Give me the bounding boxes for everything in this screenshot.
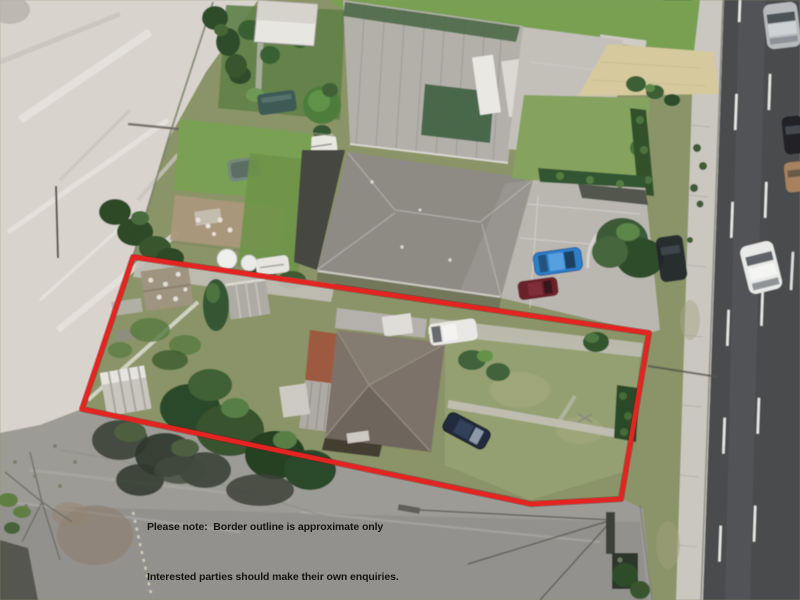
gray-shed: [226, 278, 271, 319]
shed-weeds: [108, 318, 201, 370]
aerial-photo: [0, 0, 800, 600]
silver-car: [762, 1, 800, 50]
disclaimer-line-1: Please note: Border outline is approxima…: [147, 519, 399, 536]
white-shed-lower: [100, 365, 152, 416]
white-shed: [254, 0, 318, 46]
lot-house-roof: [299, 308, 445, 457]
dark-car-under-tree: [655, 234, 688, 282]
lean-to: [279, 383, 310, 417]
disclaimer-note: Please note: Border outline is approxima…: [147, 486, 399, 600]
disclaimer-line-2: Interested parties should make their own…: [147, 569, 399, 586]
aerial-listing-image: Please note: Border outline is approxima…: [0, 0, 800, 600]
top-house-roof: [343, 0, 527, 163]
junk-shed: [140, 265, 193, 311]
